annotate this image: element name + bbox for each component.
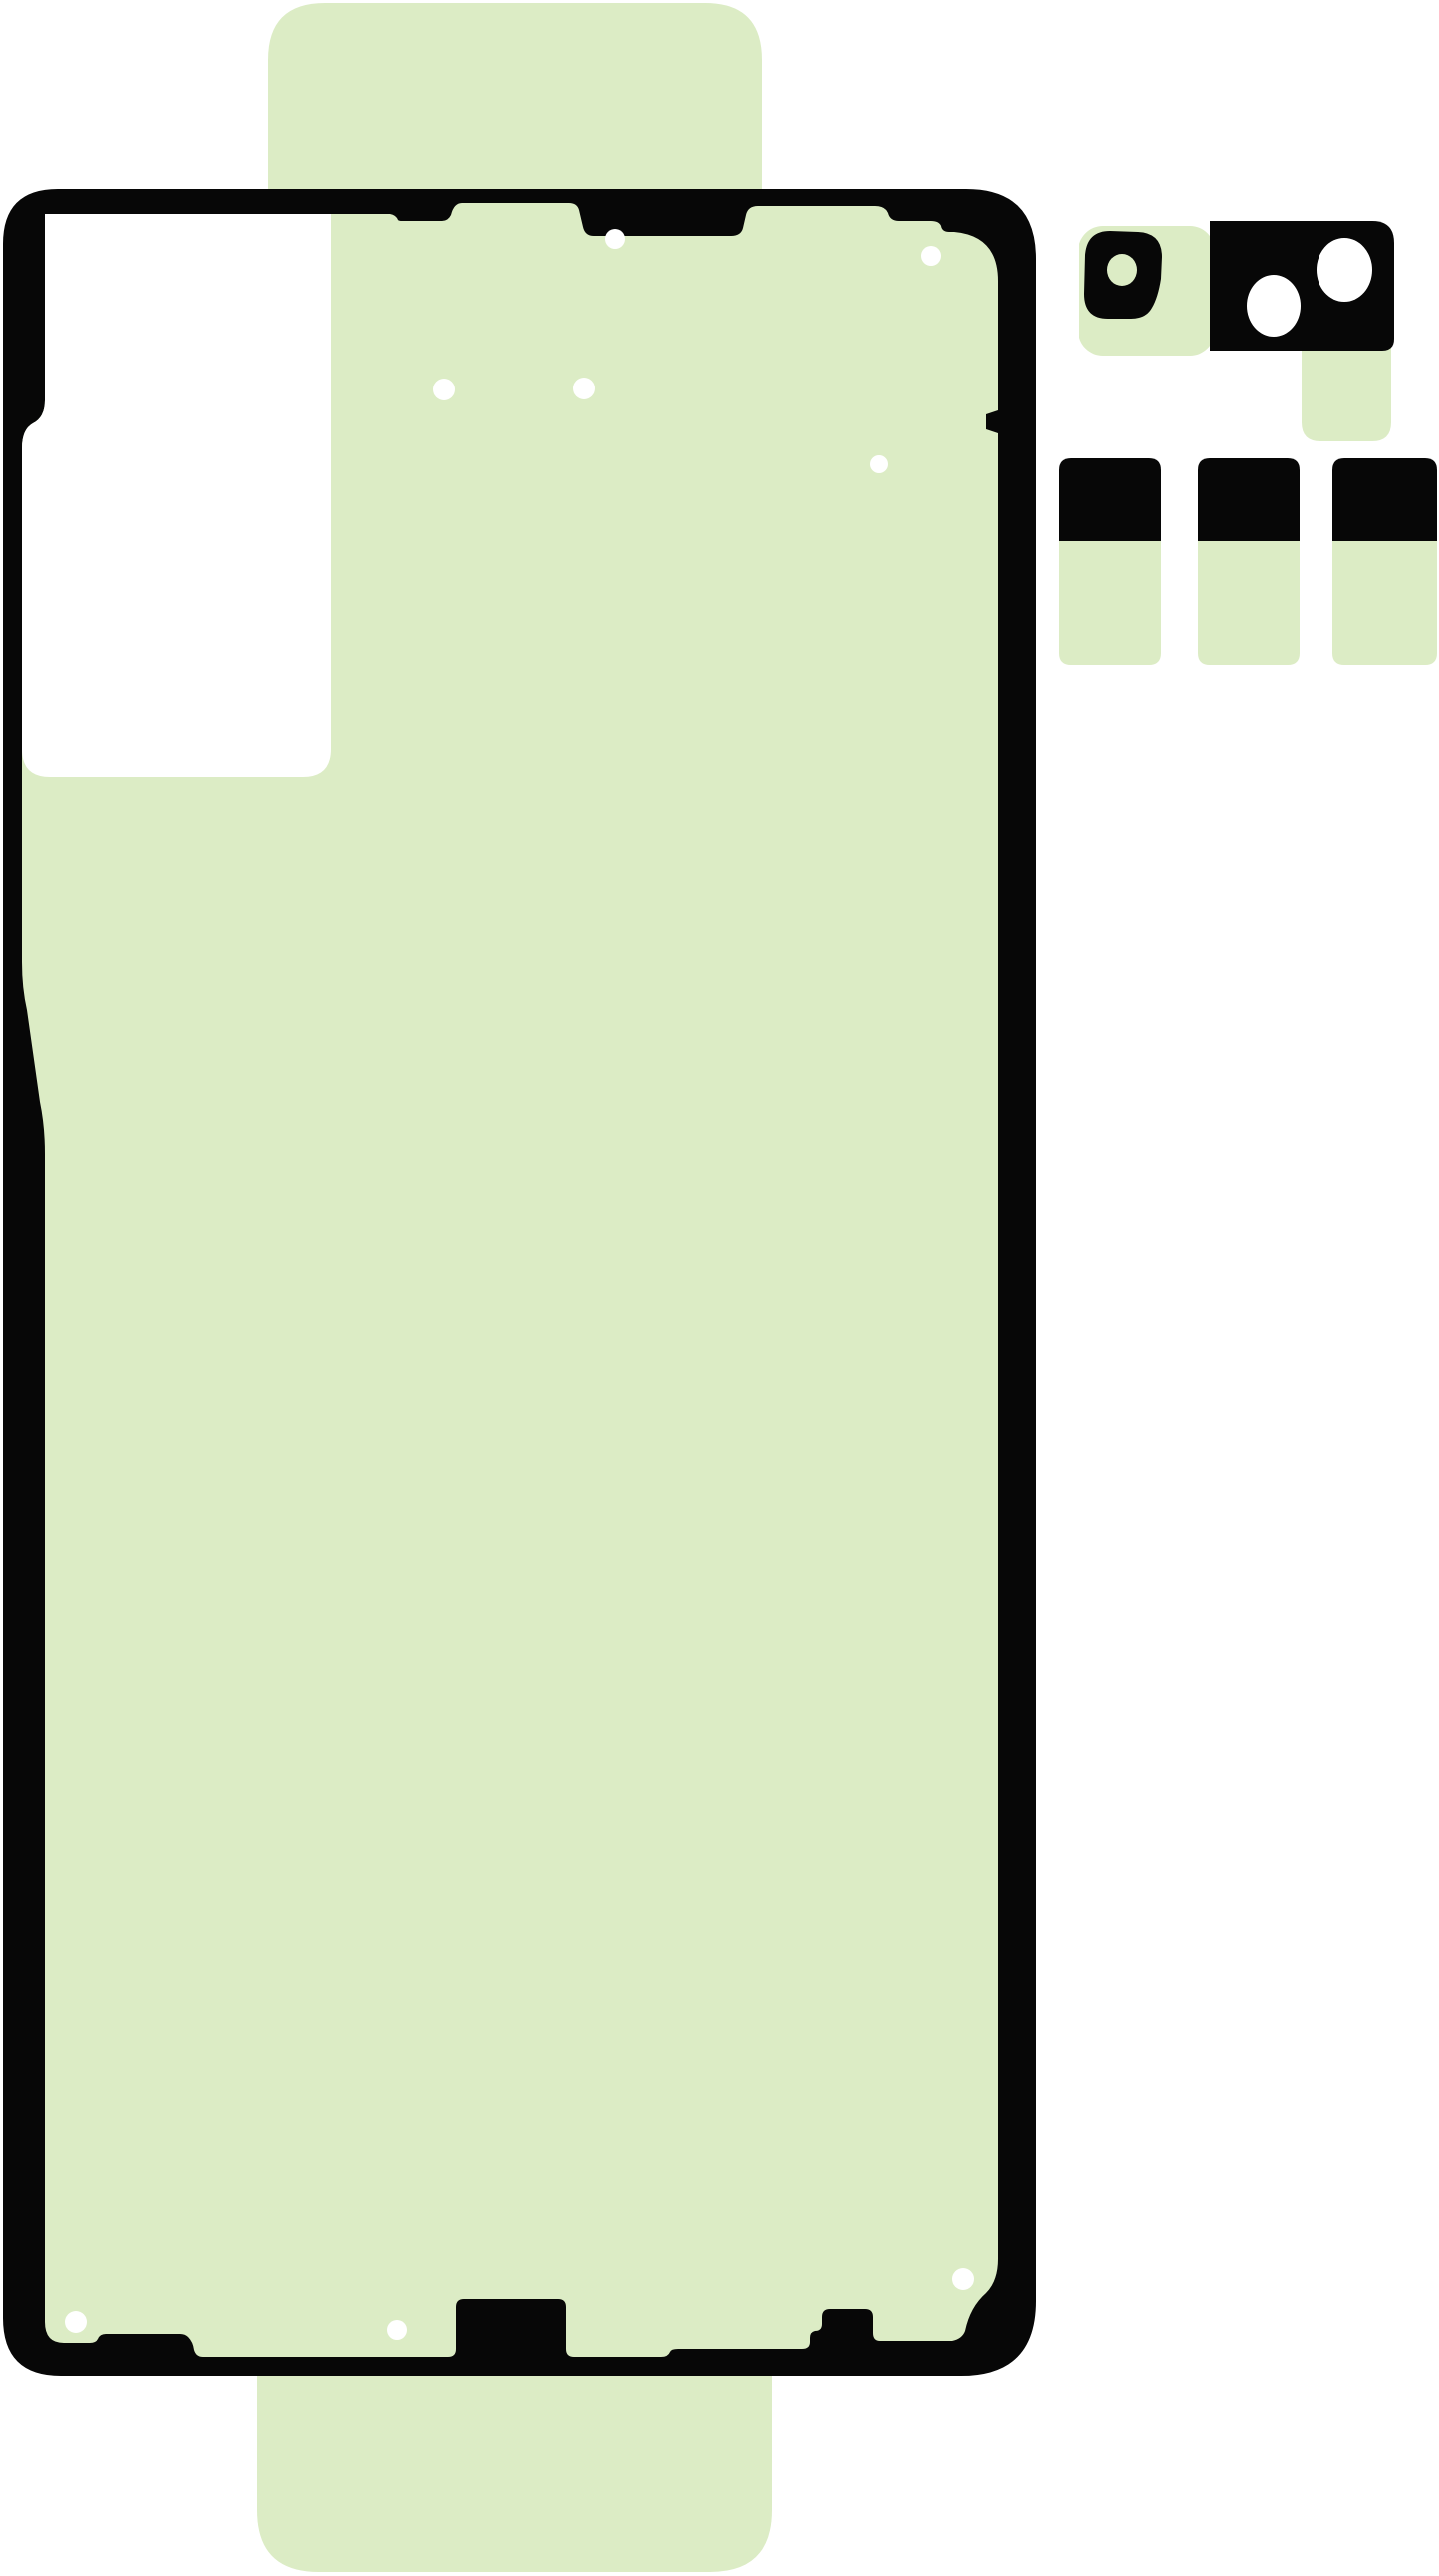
flash-hole bbox=[1107, 254, 1137, 286]
adhesive-kit-image bbox=[0, 0, 1439, 2576]
pull-tab-strips bbox=[1059, 458, 1437, 665]
hole-dot bbox=[433, 379, 455, 400]
main-sheet-white-cutout bbox=[22, 214, 331, 777]
pull-tab-green-half bbox=[1198, 541, 1300, 665]
pull-tab-black-half bbox=[1059, 458, 1161, 541]
hole-dot bbox=[387, 2320, 407, 2340]
hole-dot bbox=[921, 246, 941, 266]
pull-tab-green-half bbox=[1059, 541, 1161, 665]
lens-hole bbox=[1317, 238, 1372, 302]
pull-tab-green-half bbox=[1332, 541, 1437, 665]
hole-dot bbox=[573, 378, 595, 399]
hole-dot bbox=[870, 455, 888, 473]
camera-adhesive-green-tab bbox=[1302, 344, 1391, 441]
main-sheet-bottom-tab bbox=[257, 2374, 772, 2572]
hole-dot bbox=[65, 2311, 87, 2333]
hole-dot bbox=[605, 229, 625, 249]
flash-hole-opening bbox=[1107, 254, 1137, 286]
pull-tab-black-half bbox=[1198, 458, 1300, 541]
hole-dot bbox=[952, 2268, 974, 2290]
camera-adhesive-piece bbox=[1079, 221, 1394, 441]
product-image-stage bbox=[0, 0, 1439, 2576]
pull-tab-black-half bbox=[1332, 458, 1437, 541]
lens-hole bbox=[1247, 275, 1301, 337]
main-sheet-top-tab bbox=[268, 3, 762, 191]
